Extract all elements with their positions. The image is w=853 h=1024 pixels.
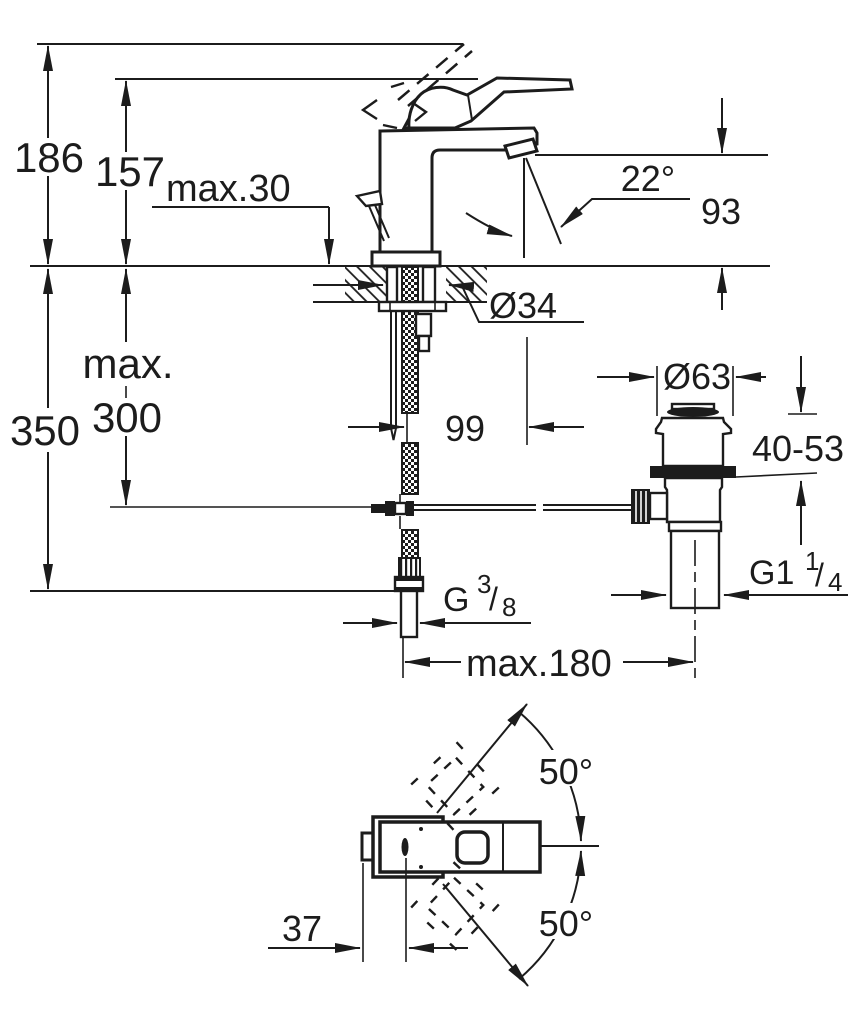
dim-label-186: 186 (14, 134, 84, 181)
dim-label-22deg: 22° (621, 158, 675, 199)
lever-dot-bottom (419, 865, 423, 869)
dimension-waste-thread: G1 1 / 4 (611, 546, 848, 597)
flex-hose-upper (402, 267, 418, 413)
dim-label-99: 99 (445, 408, 485, 449)
dimension-93: 93 (701, 98, 741, 310)
dim-label-37: 37 (282, 908, 322, 949)
waste-upper-body (656, 418, 731, 466)
swivel-diagonal-upper (437, 704, 527, 813)
dim-label-o63: Ø63 (663, 356, 731, 397)
pull-rod-below-deck (391, 311, 396, 440)
mounting-nut (419, 336, 429, 351)
faucet-body (357, 78, 572, 266)
pop-up-waste (631, 404, 736, 680)
dimension-157: 157 (95, 81, 165, 264)
hose-thread-end (399, 558, 420, 577)
lever-inset-detail (457, 832, 488, 863)
aerator-marker (402, 838, 409, 856)
dim-label-50deg-lower: 50° (539, 903, 593, 944)
dimension-350: 350 (10, 269, 80, 589)
waste-rod-stem (650, 493, 667, 519)
supply-pipe-end (401, 591, 417, 637)
dimension-max300: max. 300 (82, 269, 173, 505)
thread-waste-base: G1 (749, 554, 794, 592)
shank-tube-right (423, 267, 435, 302)
faucet-base-plate (372, 252, 440, 266)
thread-supply-base: G (443, 581, 469, 619)
dimension-max30: max.30 (152, 168, 329, 264)
rod-coupling-nub (371, 504, 385, 513)
dimension-center-distance: max.180 (405, 643, 693, 685)
thread-supply-sub: 8 (502, 592, 516, 622)
pop-up-rod (414, 505, 632, 510)
dimension-clamp-range: 40-53 (736, 356, 844, 545)
dim-label-40-53: 40-53 (752, 428, 844, 469)
dim-label-max-word: max. (82, 340, 173, 387)
thread-waste-sub: 4 (828, 567, 842, 597)
top-view: 50° 50° 37 (268, 704, 602, 986)
shank-tube-left (387, 267, 397, 302)
mounting-stud (416, 314, 431, 336)
spout-angle-annotation: 22° (466, 158, 690, 258)
dim-label-157: 157 (95, 148, 165, 195)
dim-label-max30: max.30 (166, 168, 291, 210)
technical-drawing-page: 22° 186 157 max.30 93 350 max. 300 (0, 0, 853, 1024)
dim-label-o34: Ø34 (489, 285, 557, 326)
dimension-supply-thread: G 3 / 8 (343, 569, 531, 623)
mounting-washer (379, 302, 446, 311)
faucet-underdeck-assembly (371, 267, 446, 678)
thread-supply-slash: / (489, 581, 498, 617)
faucet-dimension-drawing: 22° 186 157 max.30 93 350 max. 300 (0, 0, 853, 1024)
dim-label-93: 93 (701, 191, 741, 232)
dimension-99: 99 (348, 337, 584, 449)
dim-label-max180: max.180 (466, 643, 612, 685)
waste-plug-top (667, 407, 719, 417)
flex-hose-middle (402, 443, 418, 494)
dim-label-350: 350 (10, 407, 80, 454)
flex-hose-lower (402, 530, 418, 558)
rod-coupling (395, 503, 406, 514)
waste-flange-seal (650, 466, 736, 478)
thread-waste-slash: / (815, 557, 824, 593)
waste-collar (669, 522, 721, 531)
dim-label-50deg-upper: 50° (539, 751, 593, 792)
pull-rod-knob (357, 191, 382, 206)
waste-lower-body (665, 478, 722, 522)
dimension-186: 186 (14, 46, 84, 264)
dim-label-300: 300 (92, 394, 162, 441)
lever-dot-top (419, 827, 423, 831)
